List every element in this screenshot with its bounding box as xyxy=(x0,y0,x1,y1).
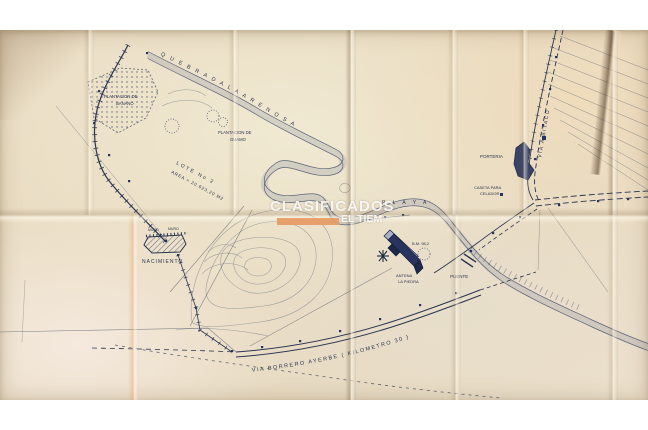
label-plantacion-banano-2: BANANO xyxy=(116,101,134,106)
label-caseta-2: CELADOR xyxy=(480,191,499,196)
label-muro-a: MURO xyxy=(148,228,159,232)
label-antena-2: LA PIEDRA xyxy=(398,279,419,284)
river-hatch xyxy=(470,250,580,308)
road-borrero xyxy=(92,272,536,398)
boundary-ticks xyxy=(178,255,232,352)
hatching-topright xyxy=(548,36,648,190)
map-photo: Q U E B R A D A L A A R E N O S A VIA BO… xyxy=(0,30,648,400)
label-via-borrero: VIA BORRERO AYERBE ( KILOMETRO 30 ) xyxy=(252,334,411,374)
road-right xyxy=(535,191,648,206)
watermark-bar xyxy=(277,218,339,225)
survey-lines xyxy=(0,106,608,352)
label-nacimiento: NACIMIENTO xyxy=(142,259,183,265)
label-antena-1: ANTENA xyxy=(396,273,413,278)
label-plantacion-guamo-2: GUAMO xyxy=(230,137,247,142)
nacimiento-tank xyxy=(144,233,188,253)
label-bm: B.M. 98,2 xyxy=(412,241,430,246)
label-plantacion-guamo-1: PLANTACION DE xyxy=(218,130,252,135)
label-porteria: PORTERIA xyxy=(480,154,503,159)
label-caseta-1: CASETA PARA xyxy=(474,185,502,190)
label-puente: PUENTE xyxy=(450,274,468,279)
star-symbol xyxy=(377,250,389,262)
watermark-subtitle: EL TIEM xyxy=(341,213,382,225)
label-muro-b: MURO xyxy=(168,227,179,231)
screenshot-root: Q U E B R A D A L A A R E N O S A VIA BO… xyxy=(0,0,648,430)
main-building xyxy=(384,230,423,274)
map-drawing: Q U E B R A D A L A A R E N O S A VIA BO… xyxy=(0,30,648,400)
label-plantacion-banano-1: PLANTACION DE xyxy=(104,94,138,99)
